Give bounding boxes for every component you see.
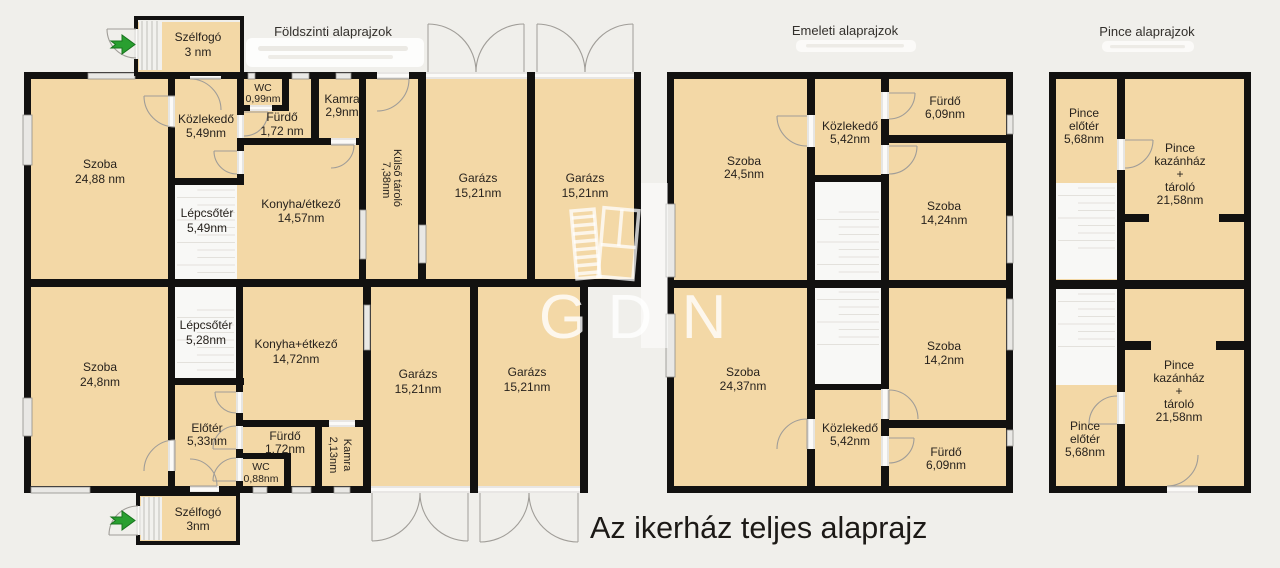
svg-text:5,42nm: 5,42nm (830, 132, 870, 146)
svg-text:tároló: tároló (1165, 180, 1195, 194)
svg-text:kazánház: kazánház (1154, 154, 1205, 168)
svg-text:15,21nm: 15,21nm (562, 186, 609, 200)
svg-text:6,09nm: 6,09nm (926, 458, 966, 472)
svg-text:Szoba: Szoba (927, 199, 961, 213)
svg-text:Fürdő: Fürdő (266, 110, 298, 124)
svg-text:Garázs: Garázs (566, 171, 605, 185)
svg-text:Pince: Pince (1164, 358, 1194, 372)
svg-text:tároló: tároló (1164, 397, 1194, 411)
svg-text:+: + (1176, 167, 1183, 181)
svg-text:WC: WC (252, 461, 270, 473)
svg-text:1,72 nm: 1,72 nm (260, 124, 303, 138)
svg-text:Lépcsőtér: Lépcsőtér (181, 206, 234, 220)
svg-text:+: + (1175, 384, 1182, 398)
svg-text:előtér: előtér (1069, 119, 1099, 133)
svg-text:5,49nm: 5,49nm (187, 221, 227, 235)
svg-text:21,58nm: 21,58nm (1156, 410, 1203, 424)
svg-text:24,88 nm: 24,88 nm (75, 172, 125, 186)
svg-text:Pince: Pince (1165, 141, 1195, 155)
svg-text:Közlekedő: Közlekedő (178, 112, 234, 126)
svg-text:14,2nm: 14,2nm (924, 353, 964, 367)
svg-text:N: N (682, 283, 727, 352)
svg-text:24,37nm: 24,37nm (720, 379, 767, 393)
svg-text:15,21nm: 15,21nm (395, 382, 442, 396)
svg-text:7,38nm: 7,38nm (380, 162, 392, 199)
svg-text:5,68nm: 5,68nm (1065, 445, 1105, 459)
svg-text:0,88nm: 0,88nm (243, 473, 278, 485)
svg-text:Lépcsőtér: Lépcsőtér (180, 318, 233, 332)
svg-text:24,5nm: 24,5nm (724, 167, 764, 181)
svg-text:5,68nm: 5,68nm (1064, 132, 1104, 146)
svg-text:3nm: 3nm (186, 519, 209, 533)
svg-text:2,13nm: 2,13nm (327, 437, 339, 474)
svg-text:Garázs: Garázs (459, 171, 498, 185)
svg-text:1,72nm: 1,72nm (265, 442, 305, 456)
svg-text:5,49nm: 5,49nm (186, 126, 226, 140)
svg-text:Kamra: Kamra (324, 92, 360, 106)
svg-text:Fürdő: Fürdő (269, 429, 301, 443)
svg-text:24,8nm: 24,8nm (80, 375, 120, 389)
svg-text:Szélfogó: Szélfogó (175, 505, 222, 519)
svg-text:Szoba: Szoba (83, 360, 117, 374)
svg-text:15,21nm: 15,21nm (455, 186, 502, 200)
svg-text:Konyha+étkező: Konyha+étkező (254, 337, 337, 351)
svg-text:Kamra: Kamra (341, 439, 353, 472)
svg-text:Szélfogó: Szélfogó (175, 30, 222, 44)
svg-text:6,09nm: 6,09nm (925, 107, 965, 121)
svg-text:0,99nm: 0,99nm (245, 93, 280, 105)
svg-text:Szoba: Szoba (727, 154, 761, 168)
svg-text:Szoba: Szoba (927, 339, 961, 353)
svg-text:14,57nm: 14,57nm (278, 211, 325, 225)
svg-text:Garázs: Garázs (399, 367, 438, 381)
svg-text:Külső tároló: Külső tároló (391, 149, 403, 207)
svg-text:Közlekedő: Közlekedő (822, 421, 878, 435)
svg-text:előtér: előtér (1070, 432, 1100, 446)
svg-text:Pince: Pince (1069, 106, 1099, 120)
svg-text:Az ikerház teljes alaprajz: Az ikerház teljes alaprajz (590, 511, 927, 545)
svg-text:Pince alaprajzok: Pince alaprajzok (1099, 24, 1195, 39)
svg-text:G: G (539, 283, 587, 352)
svg-text:Közlekedő: Közlekedő (822, 119, 878, 133)
svg-text:5,33nm: 5,33nm (187, 434, 227, 448)
svg-text:Szoba: Szoba (83, 157, 117, 171)
svg-text:5,42nm: 5,42nm (830, 434, 870, 448)
svg-text:14,24nm: 14,24nm (921, 213, 968, 227)
svg-text:Pince: Pince (1070, 419, 1100, 433)
svg-text:Konyha/étkező: Konyha/étkező (261, 197, 341, 211)
svg-text:14,72nm: 14,72nm (273, 352, 320, 366)
svg-text:Előtér: Előtér (191, 421, 222, 435)
svg-text:Garázs: Garázs (508, 365, 547, 379)
svg-text:kazánház: kazánház (1153, 371, 1204, 385)
svg-text:3 nm: 3 nm (185, 45, 212, 59)
svg-text:5,28nm: 5,28nm (186, 333, 226, 347)
svg-text:Fürdő: Fürdő (929, 94, 961, 108)
svg-text:D: D (608, 283, 653, 352)
svg-text:Emeleti alaprajzok: Emeleti alaprajzok (792, 23, 899, 38)
svg-text:2,9nm: 2,9nm (325, 105, 358, 119)
svg-text:Fürdő: Fürdő (930, 445, 962, 459)
svg-text:21,58nm: 21,58nm (1157, 193, 1204, 207)
svg-text:15,21nm: 15,21nm (504, 380, 551, 394)
svg-text:Földszinti alaprajzok: Földszinti alaprajzok (274, 24, 392, 39)
svg-text:Szoba: Szoba (726, 365, 760, 379)
